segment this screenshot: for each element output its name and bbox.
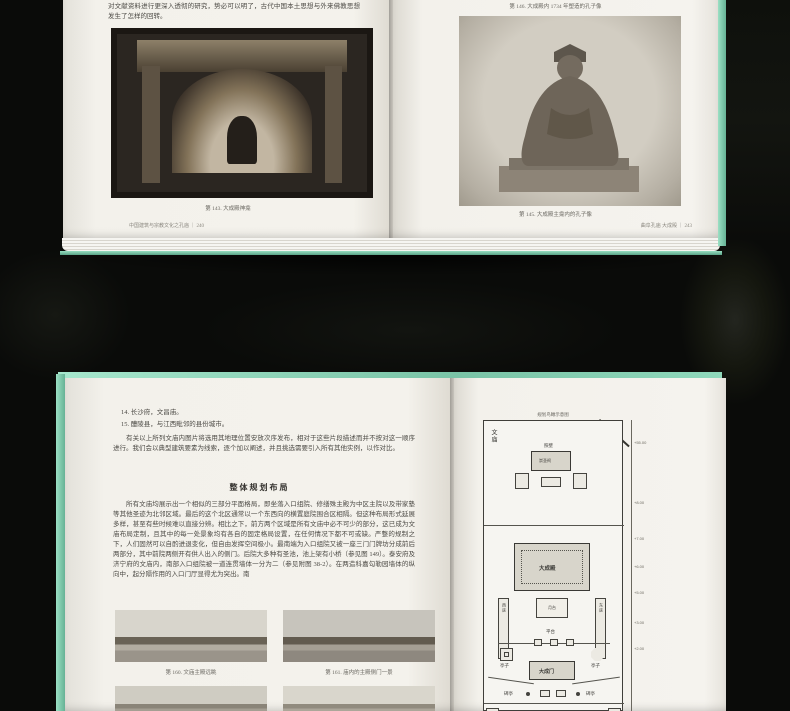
top-right-page: 第 146. 大成殿内 1734 年塑造的孔子像 第 145. 大成殿主龛内的孔… bbox=[393, 0, 718, 238]
shrine-hall: 崇圣祠 bbox=[531, 451, 571, 471]
main-hall: 大成殿 bbox=[514, 543, 590, 591]
elevation-label: +3.00 bbox=[634, 620, 644, 625]
plan-elevation-rail bbox=[631, 420, 632, 711]
book-spread-bottom: 14. 长沙府，文昌庙。 15. 醴陵县，与江西毗邻的县份城市。 有关以上所列文… bbox=[56, 372, 726, 711]
temple-photo-1 bbox=[115, 610, 267, 662]
statue-photo-caption: 第 145. 大成殿主龛内的孔子像 bbox=[393, 210, 718, 218]
shrine-statue-silhouette bbox=[227, 116, 257, 163]
intro-paragraph: 有关以上所列文庙内图片将选用其地理位置安放次序发布，相对于这些片段描述而并不按对… bbox=[113, 434, 415, 454]
gate-wing-wall-west bbox=[488, 677, 534, 684]
shrine-photo bbox=[111, 28, 373, 198]
top-book-cover-right bbox=[718, 0, 726, 246]
shrine-court-gate bbox=[541, 477, 561, 487]
bottom-right-page: 规划鸟瞰示意图 泸州 +55.00 +8.00 +7.00 +6.00 +5.0… bbox=[454, 378, 726, 711]
temple-photo-2 bbox=[283, 610, 435, 662]
list-item-14: 14. 长沙府，文昌庙。 bbox=[121, 408, 401, 418]
pavilion-east-label: 亭子 bbox=[591, 663, 600, 669]
east-hall-label: 东庑 bbox=[598, 603, 604, 613]
great-gate: 大成门 bbox=[529, 661, 575, 680]
forecourt-wall bbox=[484, 703, 624, 704]
temple-photo-4-cropped bbox=[283, 686, 435, 711]
pavilion-east bbox=[591, 648, 604, 661]
west-hall-label: 西庑 bbox=[501, 603, 507, 613]
top-book-fore-edge bbox=[62, 238, 720, 251]
plan-title: 规划鸟瞰示意图 bbox=[483, 412, 623, 418]
product-photo-scene: 对文献资料进行更深入透彻的研究，势必可以明了，古代中国本土思想与外来佛教思想发生… bbox=[0, 0, 790, 711]
backdrop-frame-right bbox=[725, 0, 790, 240]
section-heading: 整体规划布局 bbox=[65, 482, 454, 493]
plan-temple-label: 文庙 bbox=[489, 429, 498, 443]
moon-terrace-label: 月台 bbox=[548, 605, 556, 611]
pavilion-west-core bbox=[504, 652, 509, 657]
top-right-page-footer: 曲阜孔庙 大成殿 ｜ 243 bbox=[641, 222, 692, 229]
shrine-side-room-west bbox=[515, 473, 529, 489]
great-gate-label: 大成门 bbox=[539, 668, 554, 675]
terrace-gate-center bbox=[550, 639, 558, 646]
stele-pavilion-west-label: 碑亭 bbox=[504, 691, 513, 697]
elevation-label: +6.00 bbox=[634, 564, 644, 569]
elevation-label: +55.00 bbox=[634, 440, 646, 445]
entry-room-east bbox=[556, 690, 566, 697]
site-plan: 文庙 照壁 崇圣祠 大成殿 西庑 bbox=[483, 420, 623, 711]
stele-dot-west bbox=[526, 692, 530, 696]
book-spread-top: 对文献资料进行更深入透彻的研究，势必可以明了，古代中国本土思想与外来佛教思想发生… bbox=[60, 0, 726, 262]
list-item-15: 15. 醴陵县，与江西毗邻的县份城市。 bbox=[121, 420, 401, 430]
top-left-page-footer: 中国建筑与宗教文化之孔庙 ｜ 240 bbox=[129, 222, 204, 229]
screen-wall-label: 照壁 bbox=[544, 443, 553, 449]
elevation-label: +2.00 bbox=[634, 646, 644, 651]
shrine-side-room-east bbox=[573, 473, 587, 489]
top-book-cover-bottom bbox=[60, 251, 722, 255]
backdrop-shadow-mid bbox=[200, 280, 620, 380]
intro-paragraph: 对文献资料进行更深入透彻的研究，势必可以明了，古代中国本土思想与外来佛教思想发生… bbox=[108, 2, 360, 22]
main-hall-label: 大成殿 bbox=[539, 564, 556, 572]
terrace-gate-east bbox=[566, 639, 574, 646]
shrine-photo-caption: 第 143. 大成殿神龛 bbox=[63, 204, 393, 212]
terrace-gate-west bbox=[534, 639, 542, 646]
body-paragraph: 所有文庙均展示出一个相似的三部分平面格局，即坐落入口组院、修缮殊主殿为中区主院以… bbox=[113, 500, 415, 608]
bottom-left-page: 14. 长沙府，文昌庙。 15. 醴陵县，与江西毗邻的县份城市。 有关以上所列文… bbox=[65, 378, 454, 711]
moon-terrace: 月台 bbox=[536, 598, 568, 618]
confucius-statue-photo bbox=[459, 16, 681, 206]
platform-label: 平台 bbox=[546, 629, 555, 635]
elevation-label: +5.00 bbox=[634, 590, 644, 595]
entry-room-west bbox=[540, 690, 550, 697]
confucius-statue-silhouette bbox=[459, 16, 681, 206]
shrine-column-left bbox=[142, 66, 160, 183]
shrine-hall-label: 崇圣祠 bbox=[539, 458, 551, 464]
bottom-book-cover-left bbox=[56, 374, 65, 711]
temple-photo-1-caption: 第 160. 文庙主殿远眺 bbox=[115, 668, 267, 676]
pavilion-west-label: 亭子 bbox=[500, 663, 509, 669]
elevation-label: +7.00 bbox=[634, 536, 644, 541]
shrine-column-right bbox=[325, 66, 343, 183]
elevation-label: +8.00 bbox=[634, 500, 644, 505]
shrine-canopy-shape bbox=[137, 40, 347, 72]
temple-photo-3-cropped bbox=[115, 686, 267, 711]
statue-photo-top-caption: 第 146. 大成殿内 1734 年塑造的孔子像 bbox=[393, 2, 718, 10]
stele-dot-east bbox=[576, 692, 580, 696]
gate-wing-wall-east bbox=[572, 677, 620, 685]
pavilion-west bbox=[500, 648, 513, 661]
terrace-wall-upper bbox=[484, 525, 624, 526]
temple-photo-2-caption: 第 161. 庙内的主殿侧门一景 bbox=[283, 668, 435, 676]
top-left-page: 对文献资料进行更深入透彻的研究，势必可以明了，古代中国本土思想与外来佛教思想发生… bbox=[63, 0, 393, 238]
stele-pavilion-east-label: 碑亭 bbox=[586, 691, 595, 697]
